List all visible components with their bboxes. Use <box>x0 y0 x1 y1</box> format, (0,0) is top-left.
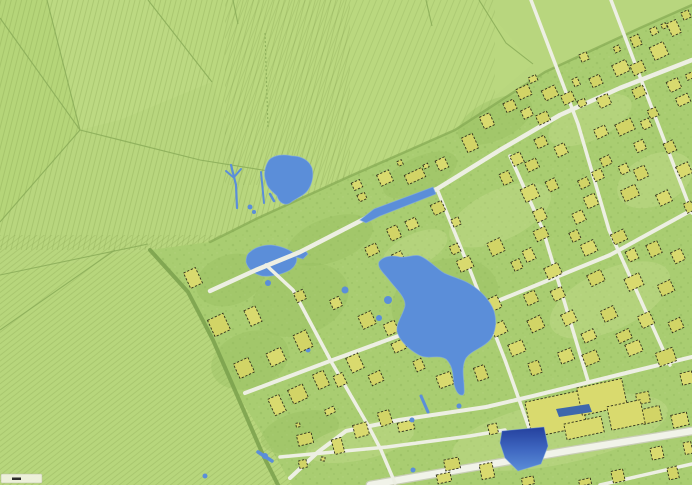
flood-puddle <box>252 210 256 214</box>
scale-bar-mark <box>12 478 21 481</box>
flood-puddle <box>265 280 271 286</box>
building <box>296 423 301 428</box>
flood-puddle <box>384 296 392 304</box>
map-canvas[interactable] <box>0 0 692 485</box>
flood-puddle <box>411 468 416 473</box>
building <box>298 459 308 469</box>
building <box>611 469 625 483</box>
flooded-ditch <box>236 185 237 208</box>
flood-puddle <box>410 418 415 423</box>
map-viewport <box>0 0 692 485</box>
building <box>667 466 679 480</box>
scale-bar-background <box>1 474 42 483</box>
building <box>650 446 664 460</box>
flood-puddle <box>203 474 208 479</box>
building <box>321 457 325 461</box>
scale-bar <box>1 474 42 483</box>
flood-puddle <box>342 287 349 294</box>
flood-puddle <box>376 315 382 321</box>
flood-puddle <box>457 404 462 409</box>
flood-puddle <box>262 453 268 459</box>
flood-puddle <box>248 205 253 210</box>
